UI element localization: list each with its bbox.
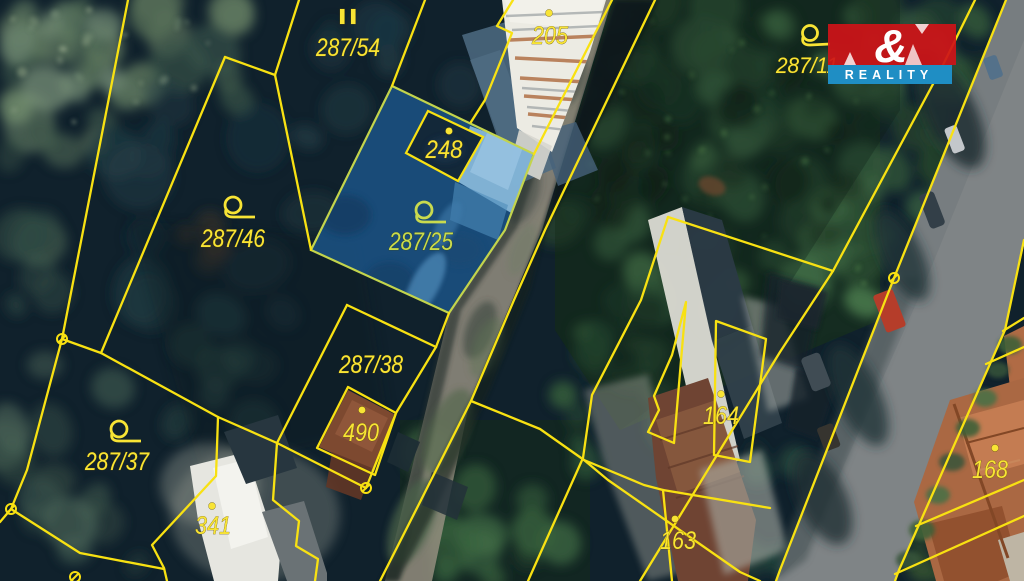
svg-text:490: 490	[343, 419, 379, 447]
svg-text:164: 164	[703, 402, 739, 430]
svg-text:341: 341	[195, 512, 231, 540]
svg-text:&: &	[874, 20, 907, 72]
svg-text:287/46: 287/46	[200, 225, 265, 253]
svg-text:287/25: 287/25	[388, 228, 453, 256]
svg-text:287/38: 287/38	[338, 351, 403, 379]
svg-text:248: 248	[425, 136, 463, 164]
svg-text:205: 205	[531, 22, 568, 50]
svg-text:287/54: 287/54	[315, 34, 380, 62]
svg-text:163: 163	[660, 527, 696, 555]
svg-text:REALITY: REALITY	[845, 68, 933, 82]
svg-text:168: 168	[972, 456, 1008, 484]
svg-text:287/37: 287/37	[84, 448, 150, 476]
